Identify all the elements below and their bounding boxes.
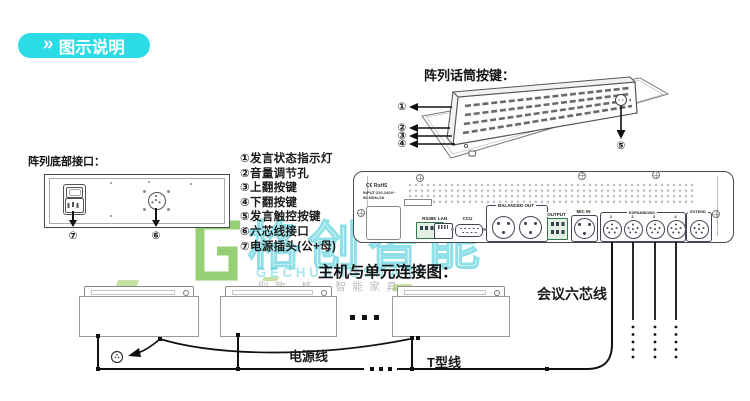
t-cable-label: T型线 xyxy=(427,352,461,371)
wire-six-core-curve xyxy=(587,242,612,369)
power-cable-label: 电源线 xyxy=(289,346,328,365)
wire-power-daisy xyxy=(160,339,410,353)
six-core-cable-label: 会议六芯线 xyxy=(537,284,607,304)
wire-chain-dots xyxy=(632,326,678,359)
power-marker-icon xyxy=(112,352,123,363)
illustration-canvas: 格创智能 GECHUANGSMART 别致 格．智能家具 » 图示说明 阵列话筒… xyxy=(0,0,750,401)
more-units-ellipsis xyxy=(350,315,379,320)
power-arrowhead xyxy=(128,348,141,357)
wiring-diagram xyxy=(0,0,750,401)
wire-power-arrow xyxy=(138,339,160,353)
